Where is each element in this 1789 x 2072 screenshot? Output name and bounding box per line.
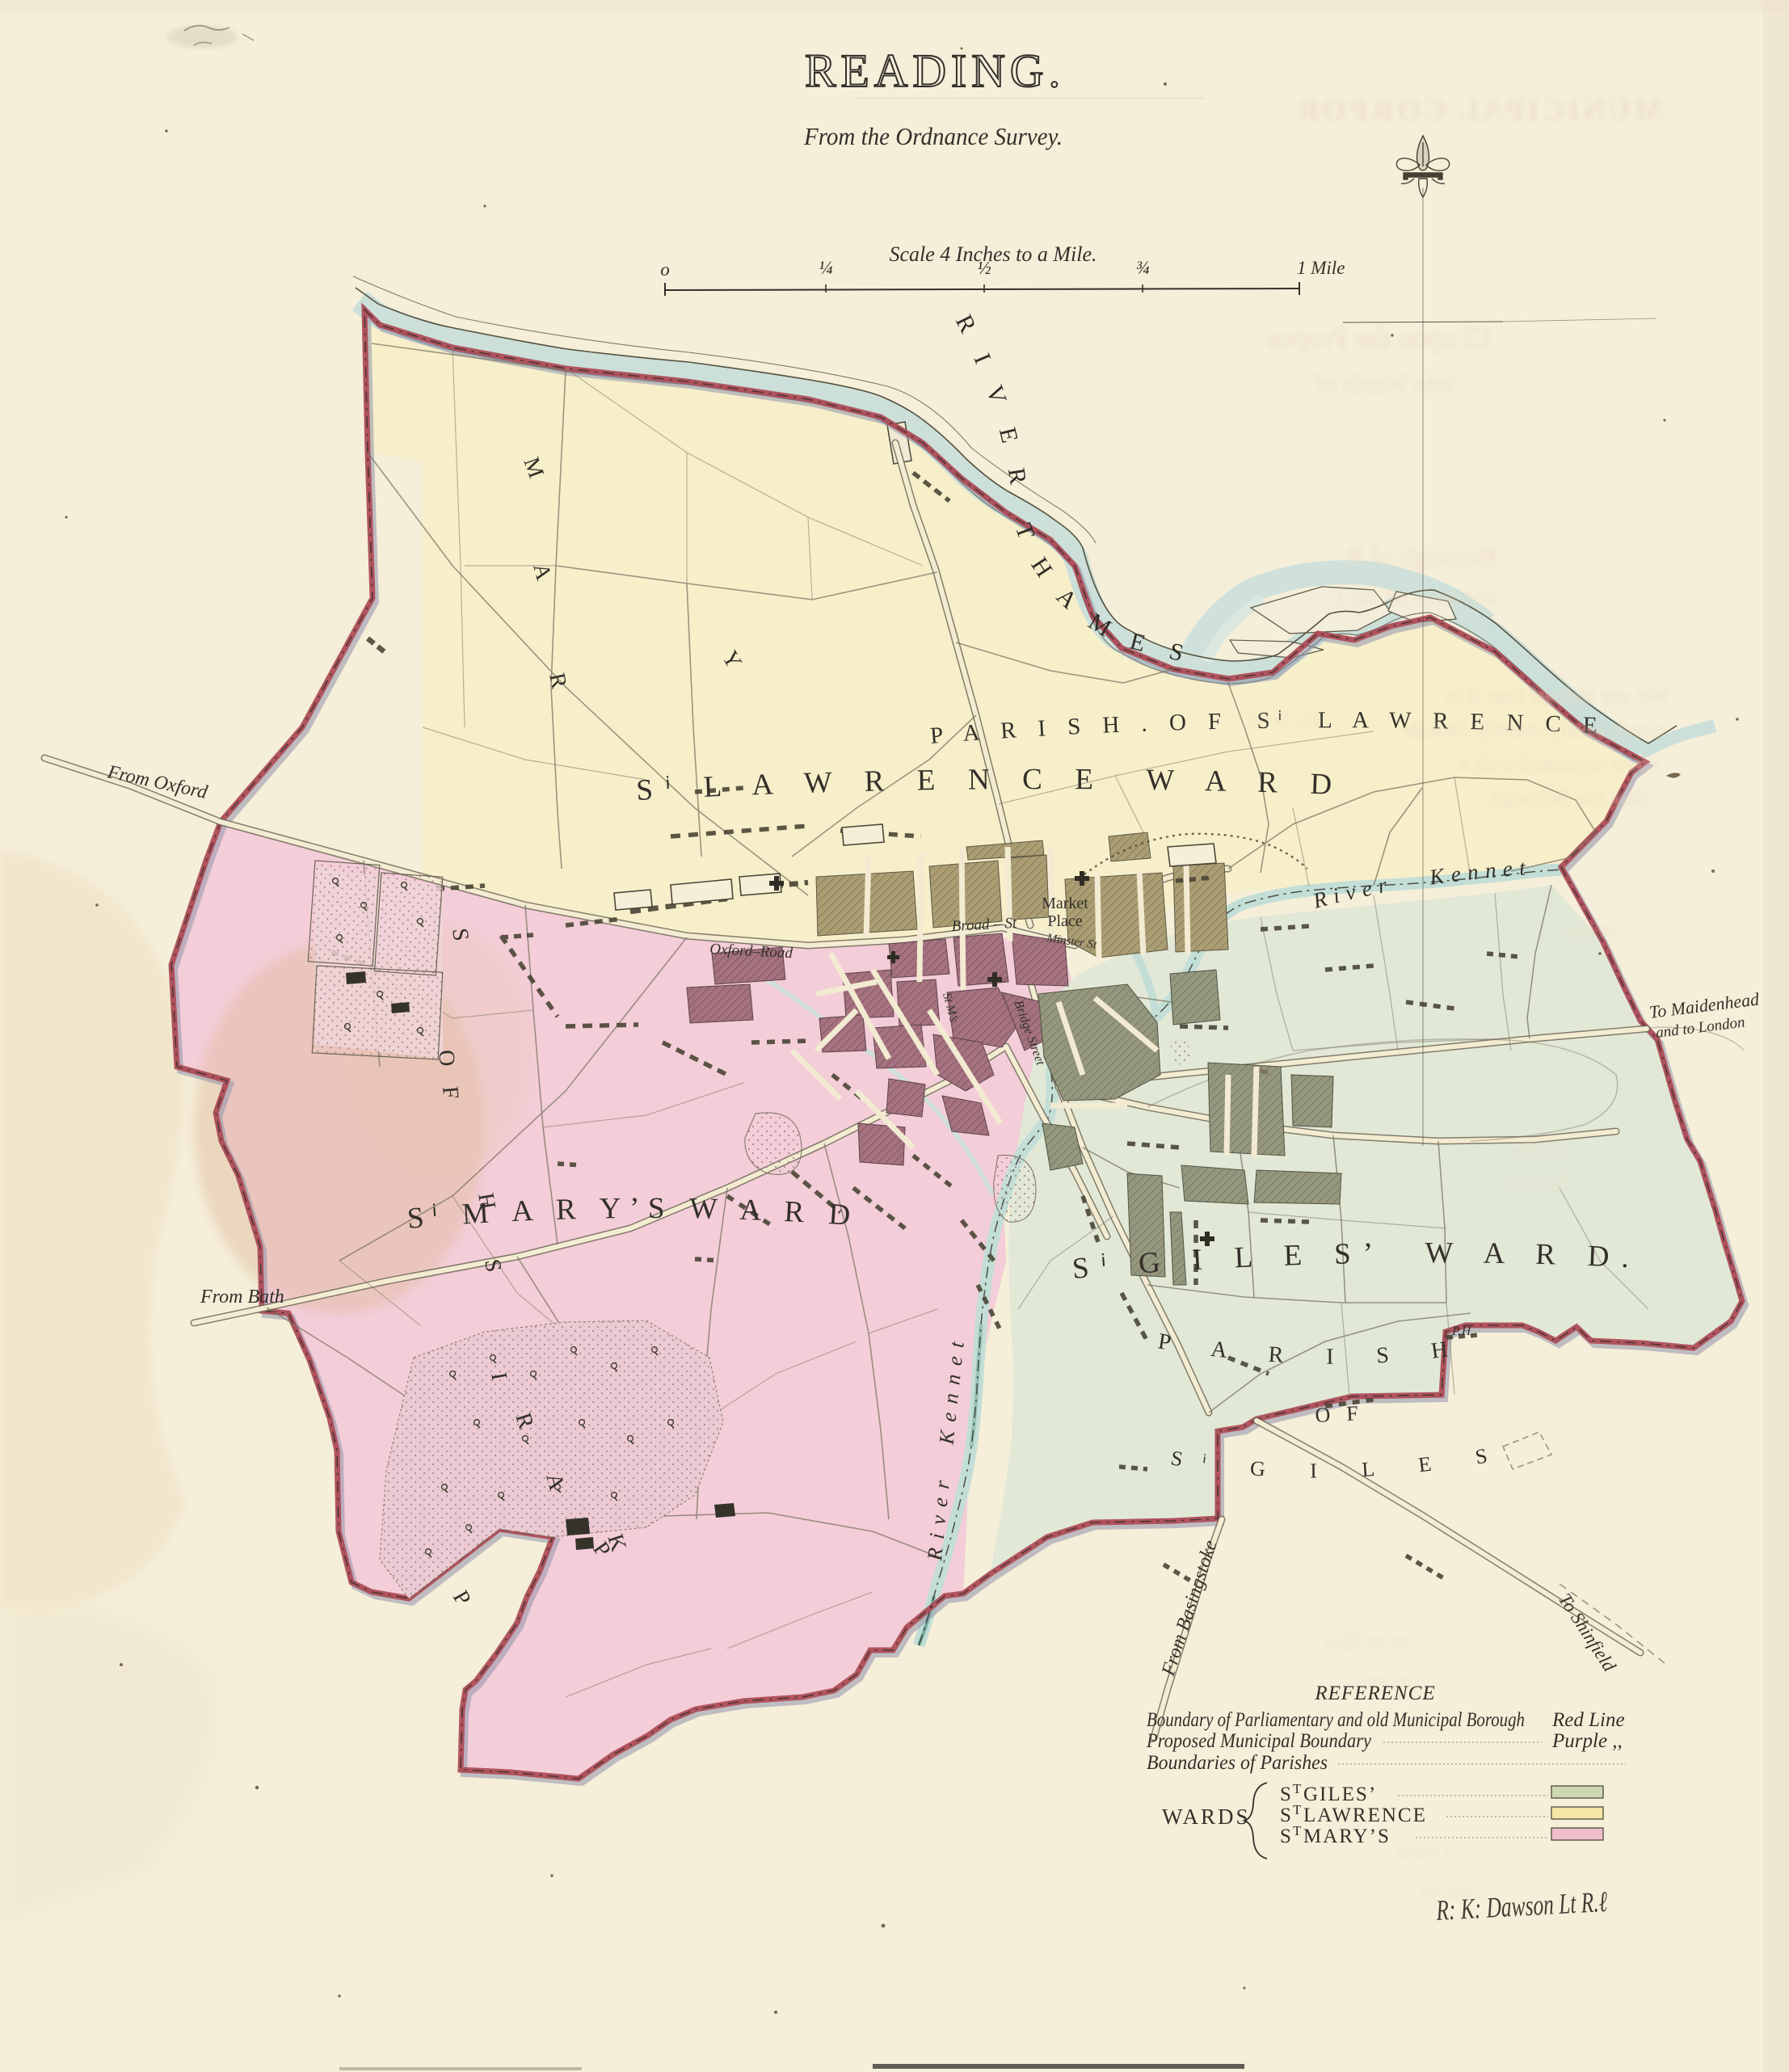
- svg-text:S: S: [1280, 1784, 1293, 1805]
- svg-text:Scale 4 Inches to a Mile.: Scale 4 Inches to a Mile.: [889, 242, 1097, 266]
- svg-text:MUNICIPAL CORPOR: MUNICIPAL CORPOR: [1294, 93, 1663, 127]
- svg-text:o: o: [660, 259, 670, 280]
- svg-text:Boundary of Parliamentary and: Boundary of Parliamentary and old Munici…: [1147, 1709, 1525, 1731]
- svg-text:than the Borough: than the Borough: [1492, 785, 1648, 811]
- svg-text:a osed: a osed: [1397, 1839, 1454, 1864]
- svg-text:at the: at the: [1510, 1135, 1564, 1161]
- svg-text:Boundaries of Parishes: Boundaries of Parishes: [1147, 1752, 1328, 1774]
- svg-text:O: O: [433, 1049, 460, 1068]
- svg-text:rt to this: rt to this: [1325, 1628, 1406, 1654]
- svg-text:¼: ¼: [819, 258, 832, 278]
- svg-text:T: T: [1293, 1823, 1302, 1838]
- svg-text:rity in de: rity in de: [1249, 707, 1325, 731]
- svg-text:T: T: [1293, 1781, 1302, 1796]
- svg-text:S: S: [1280, 1826, 1293, 1847]
- svg-text:Cl upon the Propos: Cl upon the Propos: [1267, 322, 1491, 354]
- svg-text:GILES’: GILES’: [1303, 1784, 1377, 1805]
- svg-text:F: F: [437, 1085, 463, 1100]
- svg-text:We are indeed that it is: We are indeed that it is: [1446, 682, 1669, 709]
- svg-text:MARY’S: MARY’S: [1303, 1826, 1391, 1847]
- svg-text:WARDS: WARDS: [1162, 1805, 1251, 1829]
- svg-text:¾: ¾: [1135, 258, 1149, 278]
- svg-text:into Wards of: into Wards of: [1315, 368, 1454, 398]
- svg-text:Red Line: Red Line: [1551, 1709, 1625, 1731]
- svg-text:S: S: [1280, 1805, 1293, 1826]
- svg-text:Broad – St: Broad – St: [951, 915, 1017, 935]
- svg-text:READING.: READING.: [805, 44, 1065, 97]
- svg-text:Purple ,,: Purple ,,: [1551, 1730, 1623, 1752]
- svg-text:houses: houses: [1506, 1170, 1568, 1195]
- svg-text:since separated with a: since separated with a: [1459, 752, 1658, 777]
- svg-text:OF: OF: [1315, 1400, 1375, 1427]
- svg-text:From the Ordnance Survey.: From the Ordnance Survey.: [803, 122, 1063, 150]
- svg-text:Place: Place: [1047, 912, 1082, 930]
- svg-text:LAWRENCE: LAWRENCE: [1303, 1805, 1427, 1826]
- svg-text:Proposed Municipal Boundary: Proposed Municipal Boundary: [1146, 1730, 1372, 1752]
- svg-text:½: ½: [977, 258, 991, 278]
- svg-text:T: T: [1293, 1802, 1302, 1817]
- svg-text:ent parts of the L: ent parts of the L: [1329, 583, 1495, 610]
- svg-text:P.H: P.H: [1451, 1324, 1472, 1338]
- svg-text:in the: in the: [1565, 918, 1616, 943]
- svg-text:From Bath: From Bath: [200, 1287, 284, 1308]
- svg-text:Market: Market: [1042, 895, 1088, 912]
- svg-text:wards nearly entirely include: wards nearly entirely include: [1401, 718, 1665, 743]
- svg-text:REFERENCE: REFERENCE: [1314, 1682, 1435, 1704]
- svg-text:Borough of R: Borough of R: [1345, 542, 1496, 572]
- svg-text:1 Mile: 1 Mile: [1297, 258, 1345, 278]
